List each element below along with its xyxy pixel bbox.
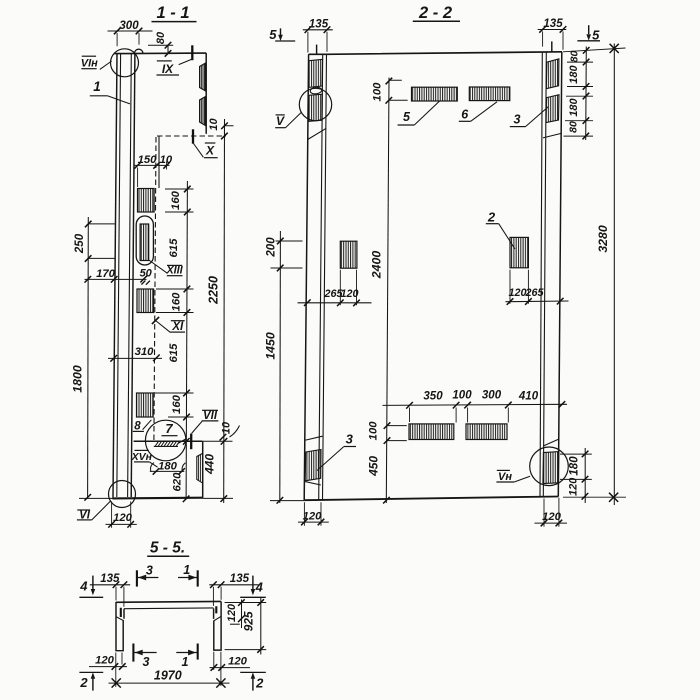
svg-text:100: 100 [368,421,380,441]
svg-text:Vн: Vн [498,471,512,483]
svg-text:1: 1 [183,563,190,577]
svg-text:VII: VII [203,410,218,422]
svg-text:2: 2 [255,676,264,691]
svg-text:1800: 1800 [71,365,85,393]
svg-text:120: 120 [303,510,323,522]
svg-text:135: 135 [230,573,250,585]
svg-text:180: 180 [569,456,581,476]
svg-text:135: 135 [309,18,329,30]
svg-text:X: X [205,144,215,158]
svg-text:1: 1 [93,79,101,94]
svg-text:50: 50 [140,267,153,279]
svg-text:XIII: XIII [165,265,183,277]
svg-text:120: 120 [95,655,115,667]
svg-text:7: 7 [165,421,173,436]
svg-text:120: 120 [508,287,526,299]
svg-text:XVн: XVн [131,451,153,463]
svg-text:10: 10 [160,154,173,166]
svg-text:1 - 1: 1 - 1 [156,4,189,22]
svg-text:180: 180 [568,97,580,116]
svg-text:V: V [276,114,285,128]
svg-text:160: 160 [171,292,183,312]
svg-text:4: 4 [79,579,88,594]
svg-text:200: 200 [265,237,277,258]
svg-text:2 - 2: 2 - 2 [418,4,452,22]
svg-text:IX: IX [162,62,174,76]
svg-text:410: 410 [518,391,539,403]
svg-text:5: 5 [592,28,600,43]
svg-text:300: 300 [482,390,502,402]
svg-text:1: 1 [182,655,189,669]
svg-text:350: 350 [423,391,443,403]
svg-text:2250: 2250 [207,276,221,305]
svg-text:615: 615 [168,238,180,258]
svg-text:620: 620 [172,472,184,492]
svg-text:120: 120 [568,478,580,496]
svg-text:300: 300 [119,20,139,32]
svg-text:925: 925 [241,611,255,631]
svg-text:170: 170 [96,268,116,280]
svg-text:310: 310 [135,346,155,358]
svg-text:120: 120 [340,288,358,300]
svg-text:VIн: VIн [81,57,98,69]
svg-text:615: 615 [168,343,180,363]
svg-text:10: 10 [208,118,220,131]
svg-text:6: 6 [461,108,469,122]
svg-text:2400: 2400 [370,251,384,280]
svg-text:2: 2 [487,209,496,224]
svg-text:135: 135 [100,573,120,585]
svg-text:160: 160 [171,394,183,414]
svg-text:265: 265 [524,287,544,299]
svg-text:5 - 5.: 5 - 5. [150,540,185,557]
svg-text:10: 10 [221,421,233,434]
svg-text:XI: XI [171,321,184,333]
svg-text:180: 180 [568,64,580,83]
svg-text:5: 5 [269,27,277,42]
svg-text:3: 3 [514,112,521,126]
svg-text:100: 100 [371,82,383,102]
svg-text:150: 150 [138,154,158,166]
svg-text:120: 120 [113,512,133,524]
svg-text:250: 250 [74,233,86,254]
svg-text:1970: 1970 [154,669,182,683]
svg-text:8: 8 [134,421,141,433]
svg-text:80: 80 [155,31,167,44]
svg-text:5: 5 [403,110,411,124]
svg-text:120: 120 [228,655,248,667]
svg-text:80: 80 [568,121,580,133]
svg-text:160: 160 [170,190,182,210]
svg-text:3280: 3280 [596,225,610,253]
svg-text:4: 4 [255,580,264,595]
svg-text:1450: 1450 [264,332,278,360]
svg-text:120: 120 [226,604,238,622]
svg-text:180: 180 [158,461,178,473]
svg-text:3: 3 [143,655,150,669]
svg-text:440: 440 [203,454,217,475]
svg-text:3: 3 [346,431,354,446]
svg-text:135: 135 [543,18,563,30]
svg-text:2: 2 [79,675,88,690]
svg-text:80: 80 [568,51,580,63]
svg-text:3: 3 [146,563,153,577]
svg-text:120: 120 [542,511,562,523]
svg-text:450: 450 [366,456,380,477]
svg-text:100: 100 [452,390,472,402]
